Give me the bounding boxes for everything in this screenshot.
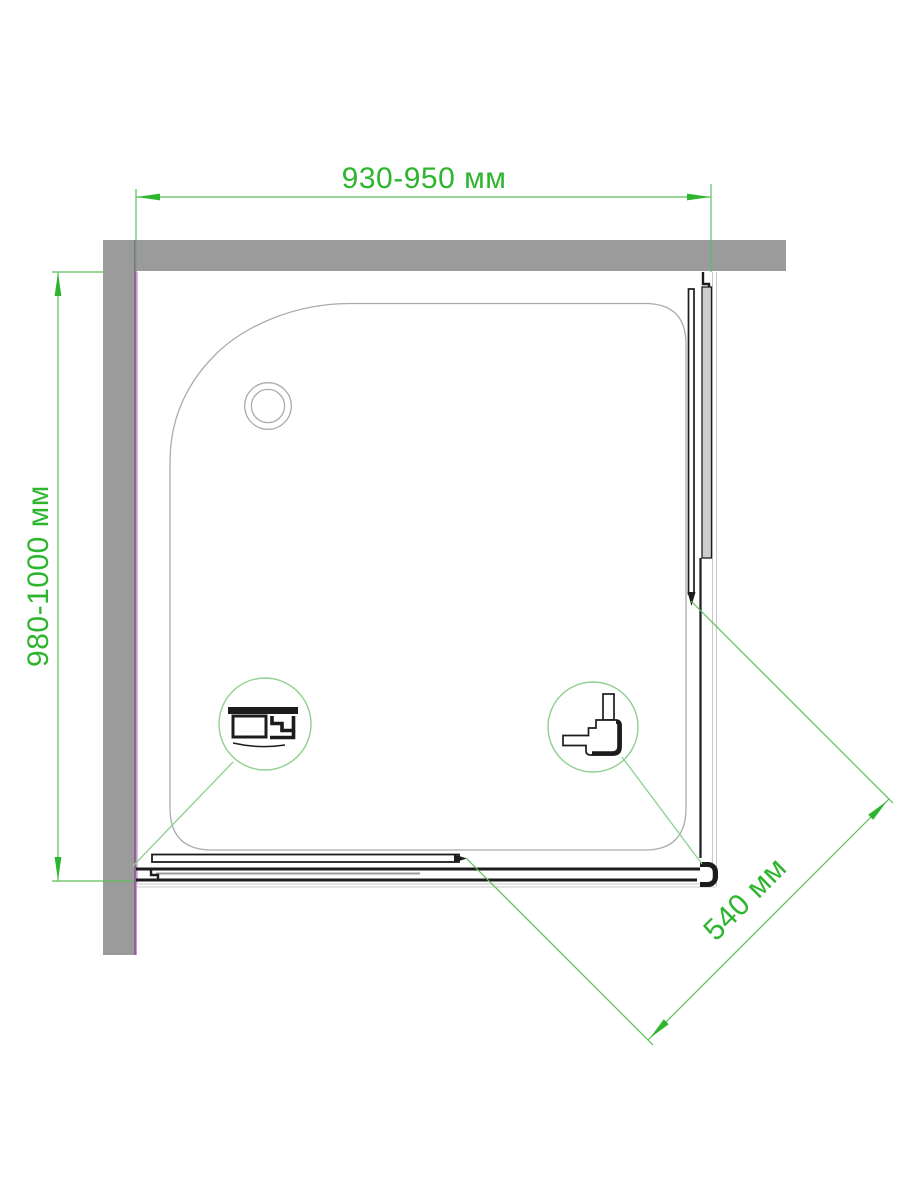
dimension-door-opening: 540 мм: [466, 601, 893, 1045]
shower-tray: [170, 304, 686, 851]
wall-left-inner-face: [134, 240, 137, 955]
right-door-assembly: [688, 272, 712, 858]
detail-wall-profile: [133, 678, 311, 866]
arrow-diag-lower-icon: [650, 1019, 669, 1038]
arrow-down-icon: [55, 857, 62, 881]
wall-left: [103, 240, 134, 955]
enclosure-boundary: [137, 272, 717, 887]
profile-channel: [233, 716, 266, 737]
arrow-right-icon: [687, 194, 711, 201]
drain-inner: [251, 389, 284, 422]
walls: [103, 240, 786, 955]
sliding-door-bottom-handle: [454, 855, 467, 863]
sliding-door-bottom: [152, 855, 459, 863]
technical-drawing: 930-950 мм 980-1000 мм 540 мм: [0, 0, 900, 1200]
bottom-door-assembly: [136, 855, 716, 885]
wall-top: [103, 240, 786, 271]
roller-body-outline: [563, 720, 621, 755]
tray-outline: [170, 304, 686, 851]
width-dimension-label: 930-950 мм: [342, 162, 507, 195]
profile-gasket: [233, 743, 285, 747]
detail-circle-right: [548, 682, 638, 772]
profile-top-bar: [228, 707, 298, 714]
arrow-up-icon: [55, 273, 62, 297]
drawing-canvas: 930-950 мм 980-1000 мм 540 мм: [0, 0, 900, 1200]
sliding-door-right: [689, 289, 695, 594]
arrow-left-icon: [137, 194, 161, 201]
roller-stem: [603, 694, 614, 720]
corner-bracket: [700, 865, 716, 885]
fixed-side-panel: [702, 287, 712, 558]
depth-dimension-label: 980-1000 мм: [22, 485, 55, 667]
profile-glass-slot: [272, 716, 294, 731]
arrow-diag-upper-icon: [868, 801, 887, 820]
